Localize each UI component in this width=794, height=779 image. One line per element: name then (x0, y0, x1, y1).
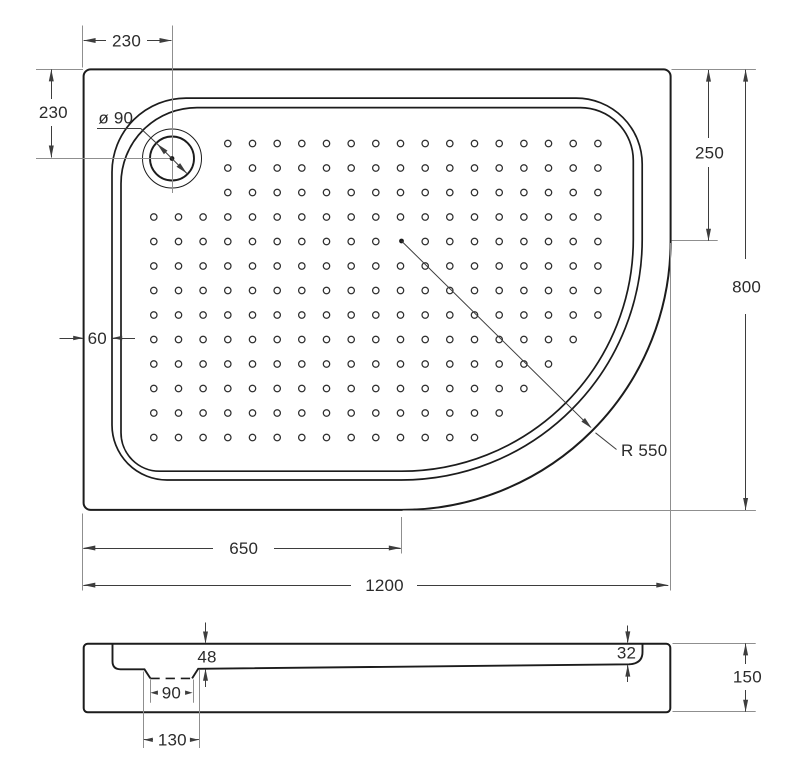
svg-text:90: 90 (162, 684, 181, 703)
svg-text:1200: 1200 (365, 576, 404, 595)
svg-text:150: 150 (733, 668, 762, 687)
svg-text:60: 60 (88, 329, 107, 348)
svg-text:32: 32 (617, 644, 636, 663)
svg-text:230: 230 (112, 32, 141, 51)
svg-text:650: 650 (229, 539, 258, 558)
svg-text:R 550: R 550 (621, 441, 667, 460)
svg-text:230: 230 (39, 103, 68, 122)
svg-text:800: 800 (732, 277, 761, 296)
svg-text:250: 250 (695, 143, 724, 162)
svg-text:48: 48 (197, 647, 216, 666)
svg-text:130: 130 (158, 731, 187, 750)
svg-text:ø 90: ø 90 (98, 108, 133, 127)
